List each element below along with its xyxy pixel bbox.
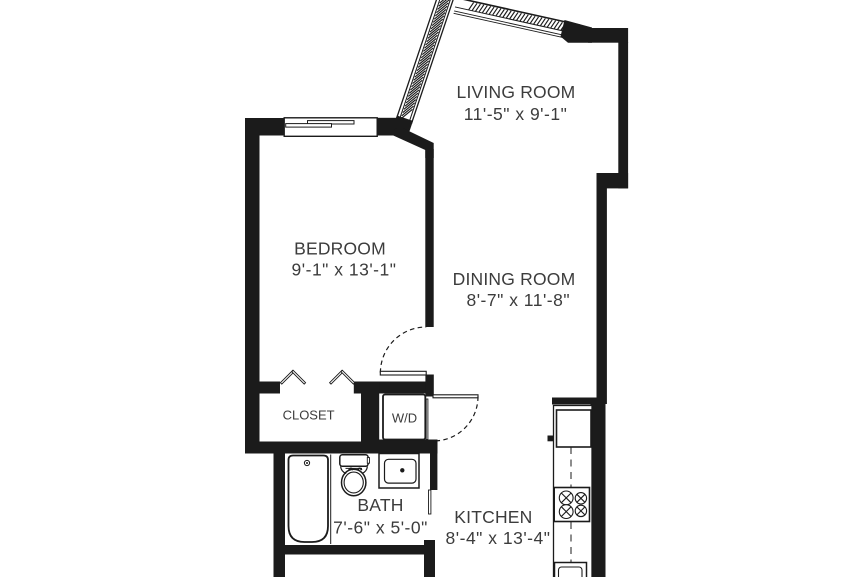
svg-text:LIVING ROOM: LIVING ROOM [457,82,576,102]
svg-text:BEDROOM: BEDROOM [294,239,386,259]
svg-text:CLOSET: CLOSET [283,408,335,423]
svg-text:11'-5" x 9'-1": 11'-5" x 9'-1" [464,104,568,124]
svg-text:W/D: W/D [392,411,417,426]
svg-text:8'-7" x 11'-8": 8'-7" x 11'-8" [466,290,570,310]
svg-text:8'-4" x 13'-4": 8'-4" x 13'-4" [446,528,551,548]
svg-text:KITCHEN: KITCHEN [454,507,532,527]
svg-text:7'-6" x 5'-0": 7'-6" x 5'-0" [333,518,428,538]
svg-text:9'-1" x 13'-1": 9'-1" x 13'-1" [292,260,397,280]
svg-text:BATH: BATH [357,495,403,515]
svg-text:DINING ROOM: DINING ROOM [453,269,576,289]
